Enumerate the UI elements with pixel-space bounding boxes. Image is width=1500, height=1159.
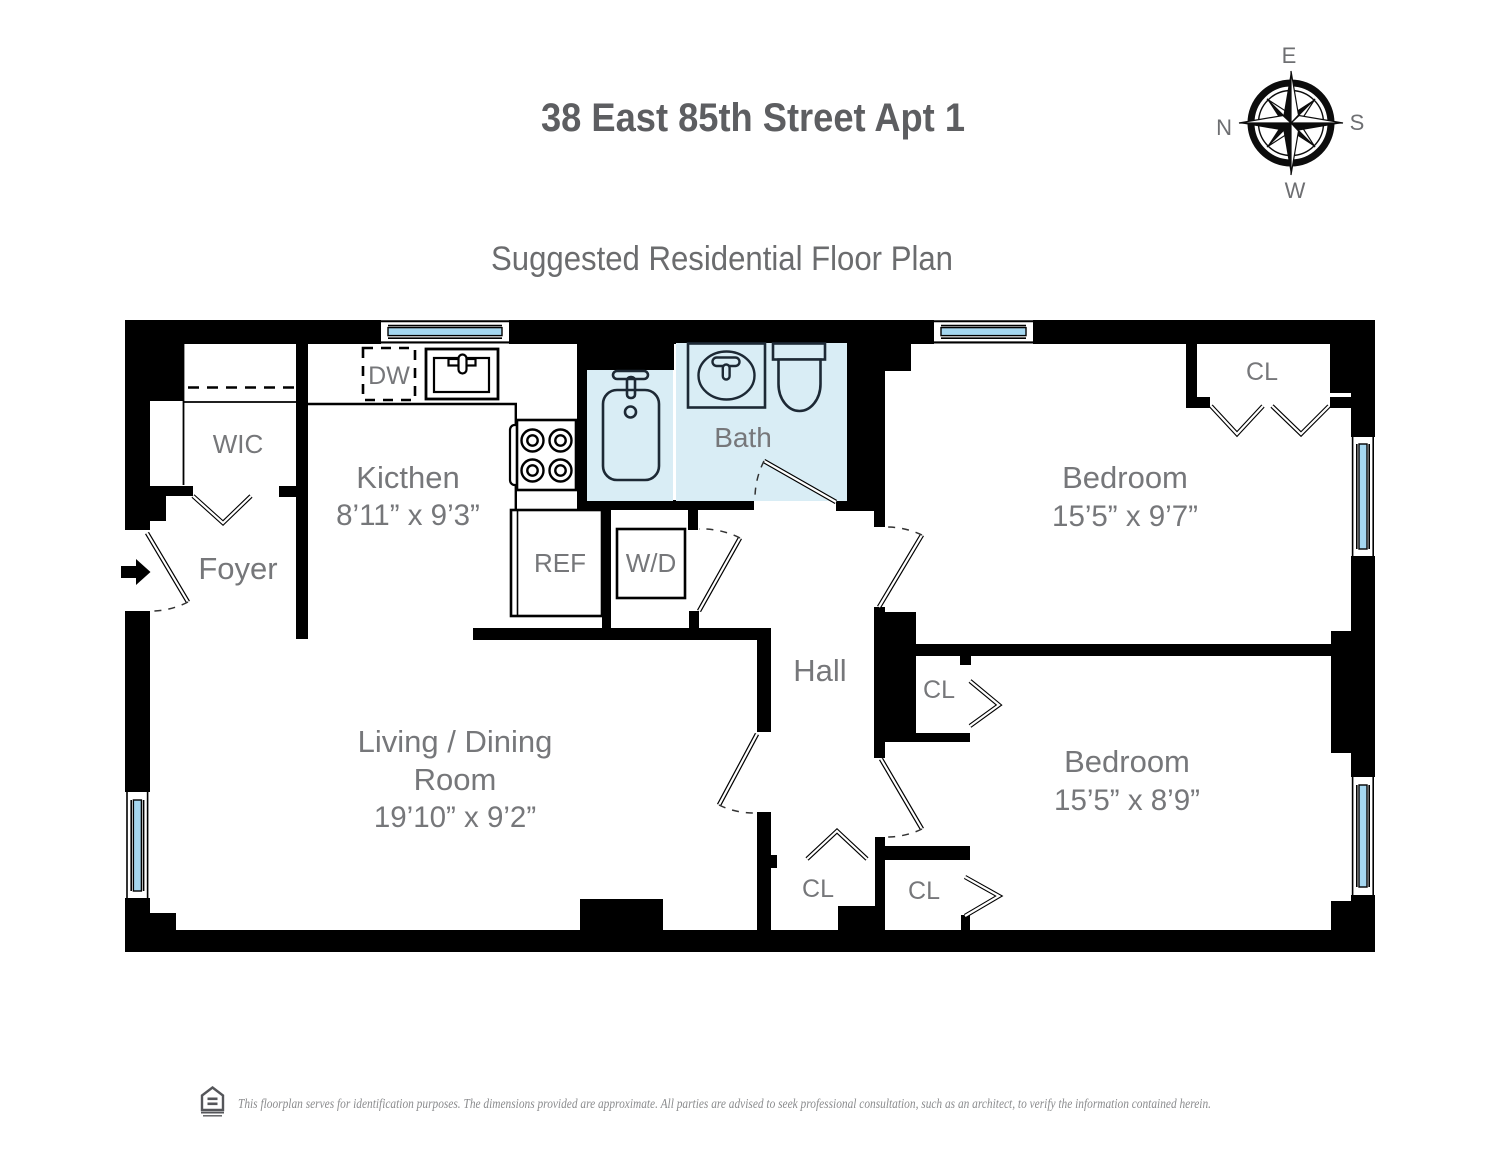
- svg-text:Living / Dining: Living / Dining: [358, 724, 553, 759]
- svg-text:WIC: WIC: [213, 429, 264, 459]
- svg-text:CL: CL: [923, 676, 955, 704]
- svg-text:Bedroom: Bedroom: [1062, 460, 1188, 495]
- svg-text:This floorplan serves for iden: This floorplan serves for identification…: [238, 1096, 1211, 1111]
- svg-text:Kicthen: Kicthen: [356, 460, 459, 495]
- svg-text:Bedroom: Bedroom: [1064, 744, 1190, 779]
- svg-text:Bath: Bath: [714, 422, 772, 453]
- svg-text:Suggested Residential Floor Pl: Suggested Residential Floor Plan: [491, 240, 953, 278]
- svg-text:CL: CL: [1246, 358, 1278, 386]
- svg-text:REF: REF: [534, 548, 586, 578]
- svg-text:38 East 85th Street Apt 1: 38 East 85th Street Apt 1: [541, 96, 965, 140]
- svg-text:Hall: Hall: [793, 653, 846, 688]
- svg-text:S: S: [1350, 110, 1365, 135]
- svg-text:CL: CL: [908, 877, 940, 905]
- svg-text:W/D: W/D: [626, 548, 677, 578]
- svg-text:W: W: [1285, 178, 1306, 203]
- svg-text:CL: CL: [802, 875, 834, 903]
- svg-text:15’5” x 9’7”: 15’5” x 9’7”: [1052, 500, 1198, 533]
- svg-text:N: N: [1216, 115, 1232, 140]
- svg-text:Foyer: Foyer: [198, 551, 277, 586]
- svg-text:Room: Room: [414, 762, 497, 797]
- svg-text:15’5” x 8’9”: 15’5” x 8’9”: [1054, 784, 1200, 817]
- svg-text:8’11” x 9’3”: 8’11” x 9’3”: [336, 499, 480, 532]
- svg-text:E: E: [1282, 43, 1297, 68]
- svg-text:DW: DW: [368, 362, 410, 390]
- svg-text:19’10” x 9’2”: 19’10” x 9’2”: [374, 801, 536, 834]
